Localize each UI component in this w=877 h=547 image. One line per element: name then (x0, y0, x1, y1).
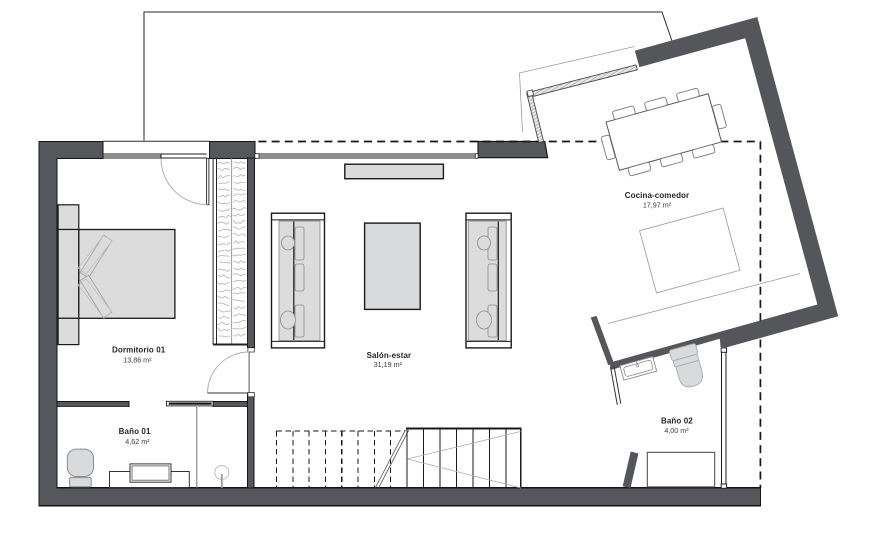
svg-text:Baño 02: Baño 02 (661, 416, 693, 425)
svg-text:4,62 m²: 4,62 m² (125, 437, 150, 446)
svg-text:Dormitorio 01: Dormitorio 01 (112, 345, 166, 354)
svg-text:17,97 m²: 17,97 m² (643, 201, 672, 210)
svg-text:4,00 m²: 4,00 m² (664, 426, 689, 435)
svg-text:31,19 m²: 31,19 m² (374, 360, 403, 369)
svg-text:Cocina-comedor: Cocina-comedor (625, 191, 690, 200)
svg-text:Salón-estar: Salón-estar (367, 351, 412, 360)
svg-text:13,86 m²: 13,86 m² (123, 356, 152, 365)
svg-text:Baño 01: Baño 01 (119, 427, 151, 436)
